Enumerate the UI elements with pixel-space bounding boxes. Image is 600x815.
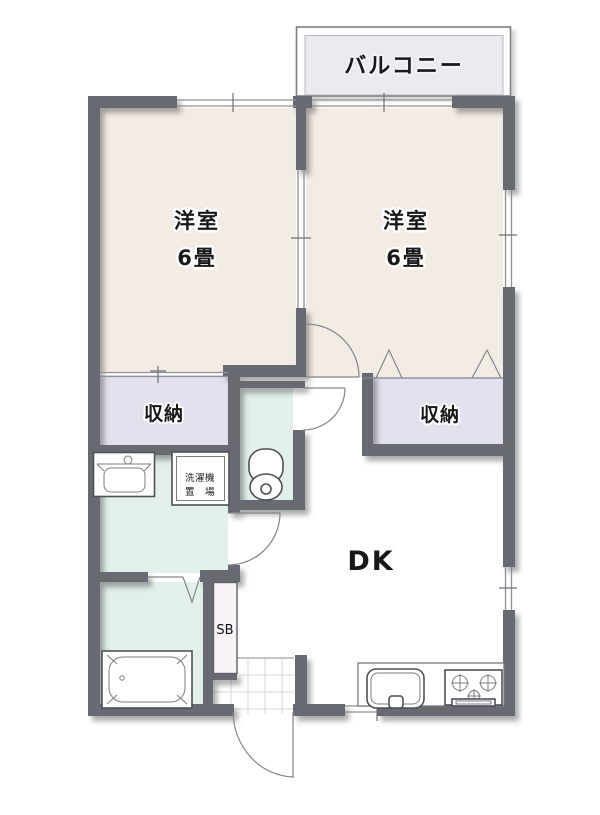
- kitchen-counter: [358, 663, 504, 708]
- wall-washroom-right-upper: [228, 445, 240, 513]
- wall-closet-right-bottom: [362, 444, 503, 456]
- shoebox: SB: [214, 583, 238, 674]
- bathtub-icon: [102, 651, 192, 708]
- dining-kitchen-label: DK: [347, 546, 394, 577]
- wall-right-upper: [503, 96, 515, 190]
- wall-bathroom-right: [203, 570, 213, 716]
- bedroom1-floor: [100, 108, 296, 373]
- balcony-label: バルコニー: [344, 54, 464, 79]
- shoebox-label: SB: [216, 623, 233, 638]
- entrance-door: [233, 712, 293, 778]
- washbasin-icon: [94, 453, 155, 497]
- wall-toilet-top: [240, 381, 305, 388]
- wall-right-middle: [503, 287, 515, 567]
- washing-machine-area: 洗濯機 置 場: [172, 452, 229, 505]
- stove-icon: [445, 670, 502, 706]
- closet-right-label: 収納: [420, 403, 460, 426]
- wall-closet-right-left: [362, 373, 373, 455]
- bedroom2-label: 洋室: [383, 209, 429, 233]
- bedroom2-floor: [306, 108, 503, 378]
- bedroom1-label: 洋室: [174, 209, 220, 233]
- bedroom1-size: 6畳: [177, 246, 217, 270]
- bedroom2-size: 6畳: [386, 246, 426, 270]
- wall-entrance-right: [295, 655, 307, 716]
- closet-left-label: 収納: [144, 402, 184, 425]
- washer-label-line2: 置 場: [185, 486, 215, 498]
- wall-top-left: [88, 96, 177, 108]
- wall-right-lower: [503, 610, 515, 716]
- wall-bathroom-top-left: [100, 572, 148, 582]
- toilet-icon: [249, 449, 283, 500]
- wall-mid-upper: [296, 96, 306, 170]
- floor-plan-drawing: 洗濯機 置 場 SB バルコニー 洋室: [0, 0, 600, 815]
- kitchen-sink-icon: [367, 669, 424, 708]
- floor-plan-page: 洗濯機 置 場 SB バルコニー 洋室: [0, 0, 600, 815]
- washer-label-line1: 洗濯機: [185, 472, 215, 484]
- wall-toilet-right: [293, 430, 305, 502]
- wall-left: [88, 96, 100, 716]
